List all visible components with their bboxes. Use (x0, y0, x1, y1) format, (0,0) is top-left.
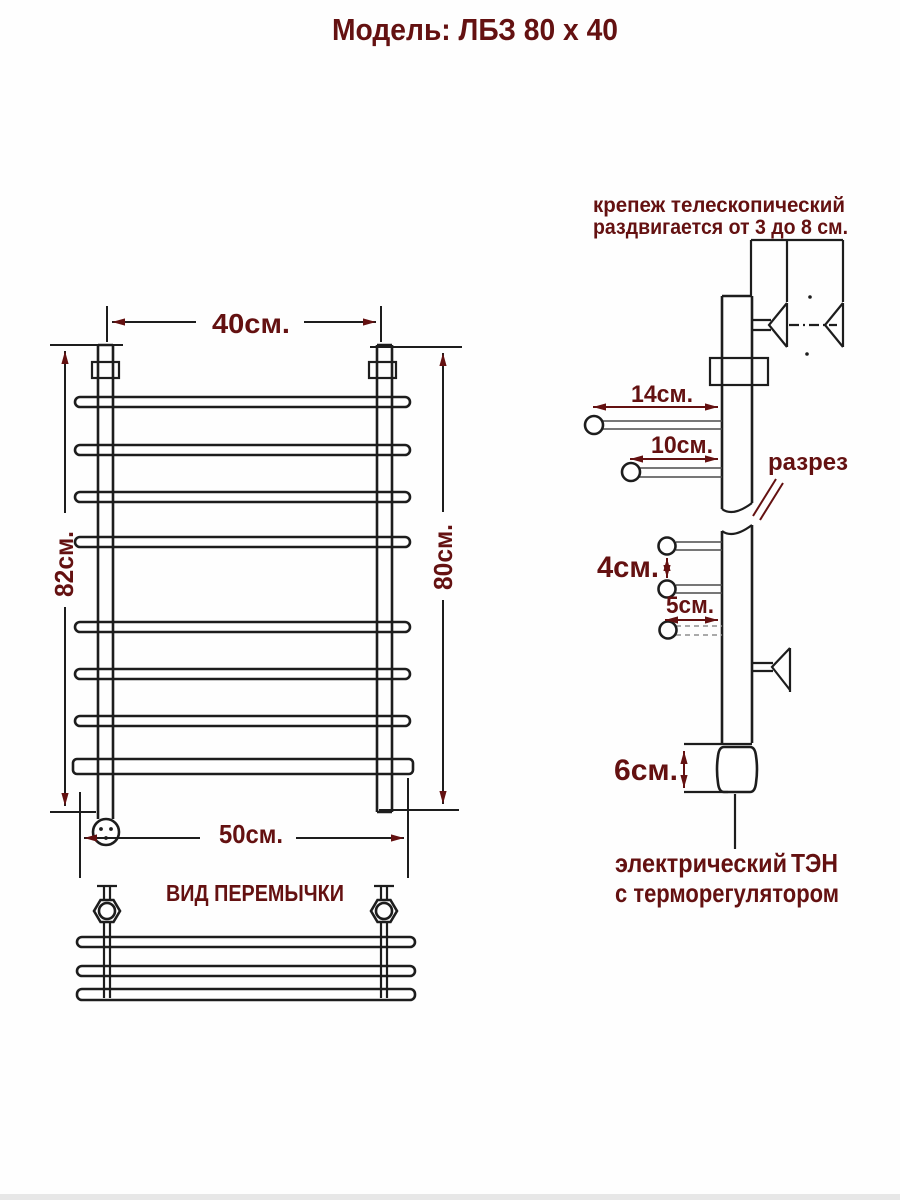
heater-element (684, 744, 757, 792)
crossbar-bars (77, 937, 415, 1000)
crossbar-bar (77, 937, 415, 947)
mount-note-line2: раздвигается от 3 до 8 см. (593, 216, 848, 239)
dim-14-label: 14см. (631, 381, 693, 408)
page-bottom-edge (0, 1194, 900, 1200)
section-cut-label: разрез (768, 449, 848, 476)
rung-bar (75, 492, 410, 502)
rung-bar (75, 445, 410, 455)
drawing-canvas: Модель: ЛБЗ 80 х 40 (0, 0, 900, 1200)
section-rungs (659, 538, 723, 639)
rung-bars (73, 397, 413, 774)
heater-caption-line1b: ТЭН (791, 848, 838, 878)
rung-bar (75, 537, 410, 547)
heater-caption-line2: с терморегулятором (615, 878, 839, 908)
rung-bar (75, 622, 410, 632)
dim-width-bottom-label: 50см. (219, 819, 283, 849)
left-post (98, 345, 113, 819)
post-clip-side (710, 358, 768, 385)
dim-height-right-label: 80см. (428, 524, 458, 590)
page-title: Модель: ЛБЗ 80 х 40 (332, 12, 618, 47)
bottom-bar (73, 759, 413, 774)
dim-heater-height: 6см. (614, 751, 684, 788)
mount-note-line1: крепеж телескопический (593, 194, 845, 217)
dim-height-left-label: 82см. (49, 531, 79, 597)
crossbar-bar (77, 989, 415, 1000)
rung-bar (75, 716, 410, 726)
section-cut-callout: разрез (753, 449, 848, 520)
dim-offset-top: 14см. (585, 381, 722, 434)
rung-bar (75, 669, 410, 679)
crossbar-view-title: ВИД ПЕРЕМЫЧКИ (166, 880, 344, 906)
dim-5-label: 5см. (666, 592, 714, 619)
lower-anchor (752, 648, 790, 692)
rung-bar (75, 397, 410, 407)
dim-rung-gap: 4см. (597, 551, 667, 584)
right-post (377, 345, 392, 812)
dim-width-top: 40см. (107, 306, 381, 342)
dim-rung-offset: 5см. (665, 592, 718, 620)
heater-caption: электрический ТЭН с терморегулятором (615, 794, 839, 908)
crossbar-view: ВИД ПЕРЕМЫЧКИ (77, 880, 415, 1000)
dim-width-top-label: 40см. (212, 308, 290, 339)
front-view: 40см. 82см. 80см. 50см. (49, 306, 462, 878)
side-view: крепеж телескопический раздвигается от 3… (585, 194, 848, 908)
technical-drawing-page: Модель: ЛБЗ 80 х 40 (0, 0, 900, 1200)
wall-bracket (751, 240, 843, 356)
crossbar-bar (77, 966, 415, 976)
dim-10-label: 10см. (651, 432, 713, 459)
heater-caption-line1a: электрический (615, 848, 787, 878)
dim-offset-mid: 10см. (622, 432, 722, 481)
dim-4-label: 4см. (597, 551, 659, 584)
dim-width-bottom: 50см. (80, 778, 408, 878)
dim-6-label: 6см. (614, 754, 678, 787)
post-clip (92, 362, 119, 378)
plug-symbol (93, 819, 119, 845)
dim-height-right: 80см. (370, 347, 462, 810)
